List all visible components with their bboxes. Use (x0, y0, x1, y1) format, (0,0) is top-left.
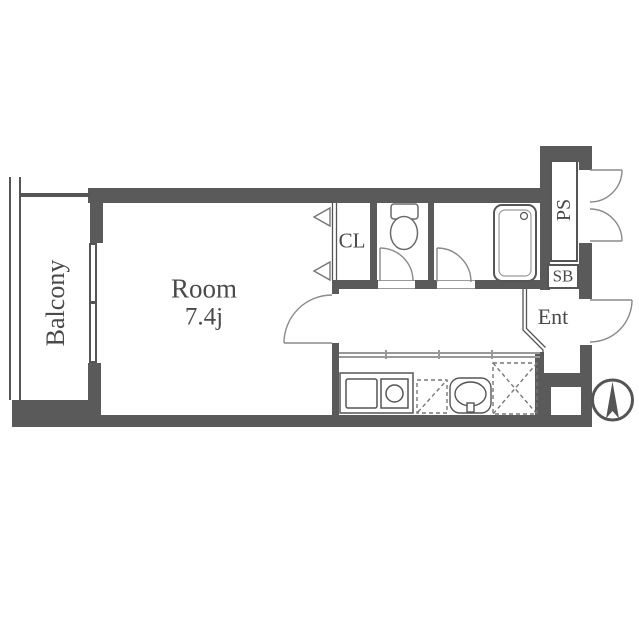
wall-top-main (88, 188, 553, 203)
room-door (284, 295, 332, 343)
bifold-arrow-bottom (314, 262, 330, 280)
pipe-space-label: PS (554, 199, 574, 221)
toilet-fixture (391, 204, 419, 250)
entrance-door (590, 300, 632, 342)
closet-label: CL (339, 231, 366, 252)
kitchen-counter (340, 373, 413, 413)
cabinet-tick-2 (438, 350, 440, 359)
window-cap-bottom (89, 361, 97, 363)
bath-door (437, 248, 471, 282)
room-label: Room (171, 276, 237, 303)
basin-faucet (467, 403, 474, 412)
bath-threshold (437, 280, 475, 289)
room-size-label: 7.4j (185, 305, 223, 330)
ps-double-door (590, 170, 622, 241)
wall-right-upper (579, 146, 592, 170)
refrigerator-space (417, 380, 447, 413)
window-mid-tick (89, 301, 97, 304)
bathtub (494, 205, 536, 281)
wall-bottom-band (12, 415, 592, 427)
washing-machine-space (493, 363, 537, 414)
floor-plan: Balcony Room 7.4j CL PS SB Ent (0, 0, 639, 640)
wall-cl-toilet (370, 202, 377, 282)
washbasin (450, 378, 491, 413)
wall-right-middle (579, 243, 592, 299)
wall-room-kitchen (332, 343, 339, 427)
balcony-rail-inner (19, 177, 21, 400)
window-cap-top (89, 243, 97, 245)
balcony-label: Balcony (43, 260, 69, 347)
wall-left-upper (90, 192, 103, 243)
balcony-rail-outer (9, 177, 11, 400)
cabinet-tick-1 (385, 350, 387, 359)
stove-burner (386, 385, 403, 402)
wall-toilet-bath (428, 202, 434, 282)
balcony-top-edge (21, 193, 90, 197)
counter-sink (346, 379, 377, 408)
bifold-arrow-top (314, 208, 330, 226)
entrance-label: Ent (538, 306, 569, 328)
closet-bifold-door (314, 203, 337, 280)
toilet-door (380, 248, 413, 281)
stove-top (381, 379, 408, 408)
toilet-threshold (378, 280, 415, 289)
meter-box (551, 387, 581, 415)
shoe-box-label: SB (553, 268, 574, 285)
compass-north-icon (593, 380, 633, 420)
cabinet-tick-3 (491, 350, 493, 359)
